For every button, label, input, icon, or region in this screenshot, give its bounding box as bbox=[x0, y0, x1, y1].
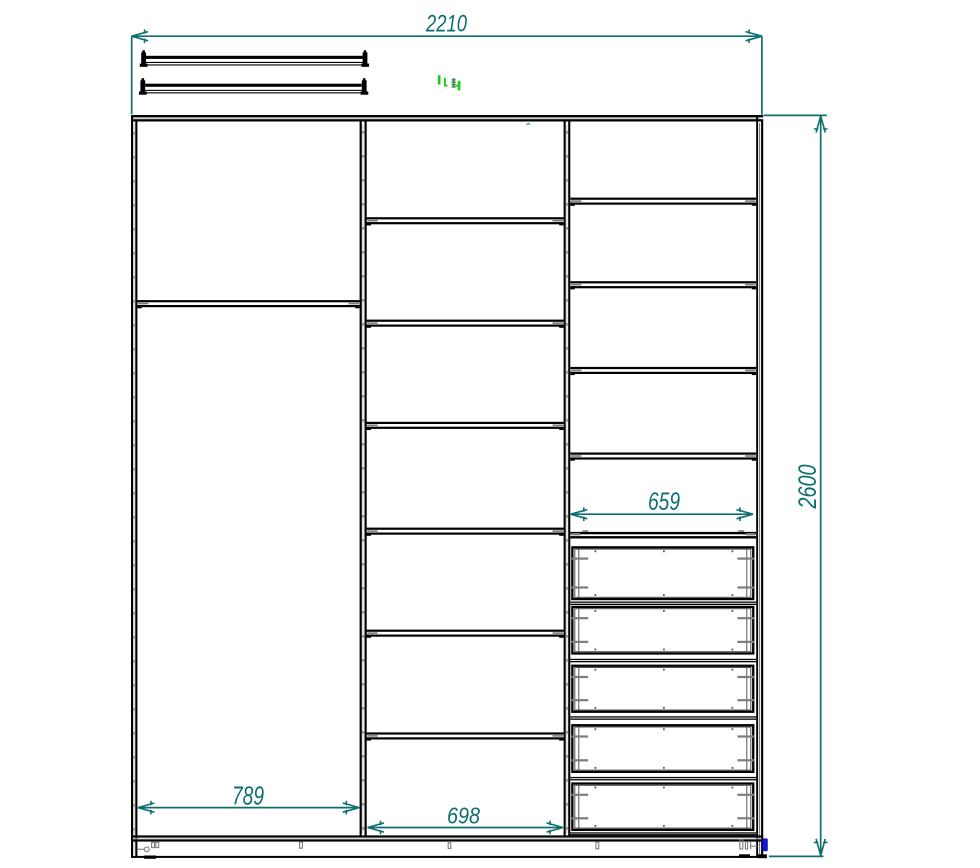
svg-text:2600: 2600 bbox=[794, 464, 822, 509]
svg-text:698: 698 bbox=[447, 803, 480, 829]
svg-text:659: 659 bbox=[648, 488, 680, 516]
svg-text:2210: 2210 bbox=[425, 11, 467, 38]
svg-text:789: 789 bbox=[232, 781, 264, 811]
